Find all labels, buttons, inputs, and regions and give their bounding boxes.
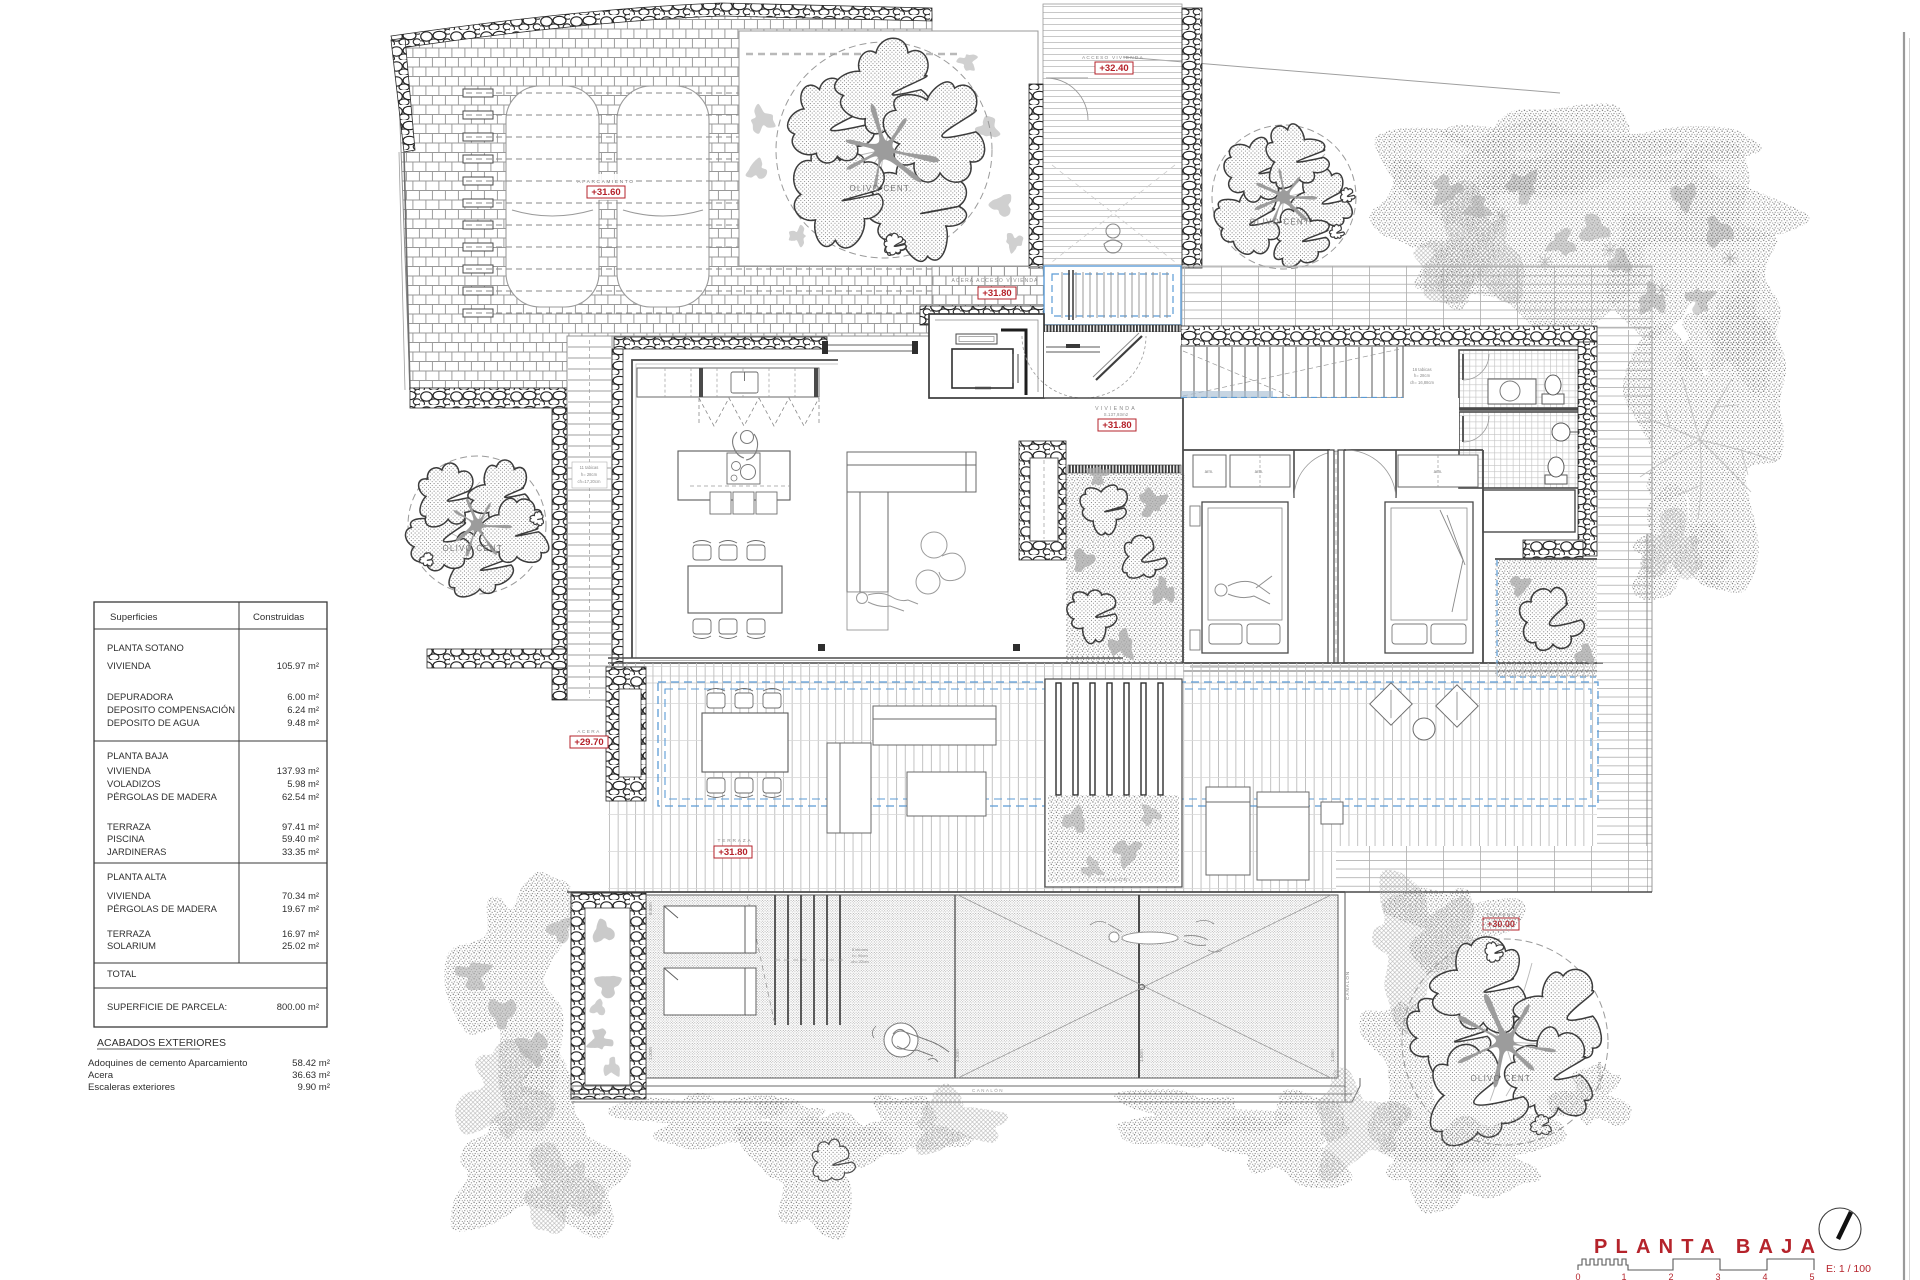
svg-text:VIVIENDA: VIVIENDA: [107, 660, 152, 671]
svg-text:25.02 m²: 25.02 m²: [282, 940, 319, 951]
svg-text:Superficies: Superficies: [110, 612, 158, 623]
svg-text:DEPOSITO COMPENSACIÓN: DEPOSITO COMPENSACIÓN: [107, 704, 235, 715]
svg-text:ACERA: ACERA: [577, 729, 601, 735]
svg-text:arm.: arm.: [1205, 469, 1214, 474]
svg-text:36.63 m²: 36.63 m²: [292, 1070, 331, 1081]
svg-text:16.97 m²: 16.97 m²: [282, 928, 319, 939]
svg-text:137.93 m²: 137.93 m²: [277, 765, 319, 776]
svg-text:3: 3: [1715, 1272, 1720, 1280]
svg-text:+31.80: +31.80: [718, 847, 747, 858]
svg-text:ACCESO VIVIENDA: ACCESO VIVIENDA: [1082, 55, 1144, 61]
svg-text:58.42 m²: 58.42 m²: [292, 1058, 331, 1069]
svg-text:PLANTA SOTANO: PLANTA SOTANO: [107, 642, 184, 653]
svg-text:PLANTA ALTA: PLANTA ALTA: [107, 871, 167, 882]
svg-text:OLIVO CENT.: OLIVO CENT.: [1250, 217, 1313, 226]
svg-text:11 tabicas: 11 tabicas: [580, 465, 599, 470]
svg-text:8 telones: 8 telones: [852, 947, 868, 952]
svg-text:+31.80: +31.80: [982, 288, 1011, 299]
svg-text:arm.: arm.: [1434, 469, 1443, 474]
svg-text:1.50m: 1.50m: [1139, 1049, 1144, 1062]
svg-text:arm.: arm.: [1255, 469, 1264, 474]
svg-text:105.97 m²: 105.97 m²: [277, 660, 319, 671]
svg-text:VOLADIZOS: VOLADIZOS: [107, 778, 161, 789]
svg-text:TERRAZA: TERRAZA: [718, 838, 753, 844]
svg-text:59.40 m²: 59.40 m²: [282, 833, 319, 844]
svg-text:PÉRGOLAS DE MADERA: PÉRGOLAS DE MADERA: [107, 791, 218, 802]
svg-text:6.00 m²: 6.00 m²: [287, 691, 319, 702]
svg-text:1.20m: 1.20m: [648, 1047, 653, 1060]
svg-text:PISCINA: PISCINA: [107, 833, 145, 844]
svg-text:9.90 m²: 9.90 m²: [297, 1082, 330, 1093]
svg-text:SOLARIUM: SOLARIUM: [107, 940, 156, 951]
svg-text:OLIVO CENT.: OLIVO CENT.: [1471, 1074, 1534, 1083]
svg-text:SUPERFICIE DE PARCELA:: SUPERFICIE DE PARCELA:: [107, 1001, 227, 1012]
svg-text:PLANTA BAJA: PLANTA BAJA: [1594, 1236, 1823, 1258]
svg-text:5: 5: [1809, 1272, 1814, 1280]
svg-text:OLIVO CENT.: OLIVO CENT.: [443, 544, 506, 553]
svg-text:VIVIENDA: VIVIENDA: [107, 890, 152, 901]
svg-text:4: 4: [1762, 1272, 1767, 1280]
svg-text:VIVIENDA: VIVIENDA: [107, 765, 152, 776]
svg-text:ACABADOS EXTERIORES: ACABADOS EXTERIORES: [97, 1037, 226, 1049]
svg-text:+32.40: +32.40: [1099, 63, 1128, 74]
svg-text:0: 0: [1575, 1272, 1580, 1280]
svg-text:h= 28cm: h= 28cm: [581, 472, 598, 477]
svg-text:TOTAL: TOTAL: [107, 968, 136, 979]
svg-text:S.137,93m2: S.137,93m2: [1104, 412, 1129, 417]
svg-text:Acera: Acera: [88, 1070, 114, 1081]
svg-text:+31.80: +31.80: [1102, 420, 1131, 431]
svg-text:ch= 22cm: ch= 22cm: [851, 959, 869, 964]
svg-text:+31.60: +31.60: [591, 187, 620, 198]
svg-text:97.41 m²: 97.41 m²: [282, 821, 319, 832]
svg-text:ch=17,20cm: ch=17,20cm: [578, 479, 601, 484]
svg-text:E: 1 / 100: E: 1 / 100: [1826, 1263, 1871, 1275]
svg-text:ch= 16,88cm: ch= 16,88cm: [1410, 380, 1435, 385]
svg-text:70.34 m²: 70.34 m²: [282, 890, 319, 901]
svg-text:33.35 m²: 33.35 m²: [282, 846, 319, 857]
svg-text:PÉRGOLAS DE MADERA: PÉRGOLAS DE MADERA: [107, 903, 218, 914]
svg-text:6.24 m²: 6.24 m²: [287, 704, 319, 715]
svg-text:16 tabicas: 16 tabicas: [1412, 367, 1431, 372]
svg-text:800.00 m²: 800.00 m²: [277, 1001, 319, 1012]
svg-text:Construidas: Construidas: [253, 612, 304, 623]
svg-text:1.49m: 1.49m: [1330, 1049, 1335, 1062]
svg-text:0.30m: 0.30m: [648, 902, 653, 915]
svg-text:DEPOSITO DE AGUA: DEPOSITO DE AGUA: [107, 717, 200, 728]
svg-text:19.67 m²: 19.67 m²: [282, 903, 319, 914]
svg-text:1.20m: 1.20m: [955, 1049, 960, 1062]
svg-text:1: 1: [1621, 1272, 1626, 1280]
svg-text:OLIVO CENT.: OLIVO CENT.: [850, 184, 913, 193]
svg-text:9.48 m²: 9.48 m²: [287, 717, 319, 728]
svg-text:TERRAZA: TERRAZA: [107, 821, 152, 832]
svg-text:PLANTA BAJA: PLANTA BAJA: [107, 750, 169, 761]
svg-text:CANALÓN: CANALÓN: [1098, 877, 1128, 882]
svg-text:CANALÓN: CANALÓN: [972, 1087, 1004, 1093]
svg-text:ACERA ACCESO VIVIENDA: ACERA ACCESO VIVIENDA: [951, 278, 1038, 284]
svg-text:APARCAMIENTO: APARCAMIENTO: [577, 179, 634, 185]
svg-text:62.54 m²: 62.54 m²: [282, 791, 319, 802]
svg-text:5.98 m²: 5.98 m²: [287, 778, 319, 789]
svg-text:2: 2: [1668, 1272, 1673, 1280]
svg-text:Adoquines de cemento Aparcamie: Adoquines de cemento Aparcamiento: [88, 1058, 247, 1069]
svg-text:CANALÓN: CANALÓN: [1344, 971, 1350, 1000]
svg-text:Escaleras exteriores: Escaleras exteriores: [88, 1082, 175, 1093]
svg-text:TERRAZA: TERRAZA: [107, 928, 152, 939]
svg-text:h= 90cm: h= 90cm: [852, 953, 868, 958]
svg-text:DEPURADORA: DEPURADORA: [107, 691, 174, 702]
svg-text:h= 28cm: h= 28cm: [1414, 373, 1431, 378]
svg-text:JARDINERAS: JARDINERAS: [107, 846, 166, 857]
svg-text:+29.70: +29.70: [574, 737, 603, 748]
